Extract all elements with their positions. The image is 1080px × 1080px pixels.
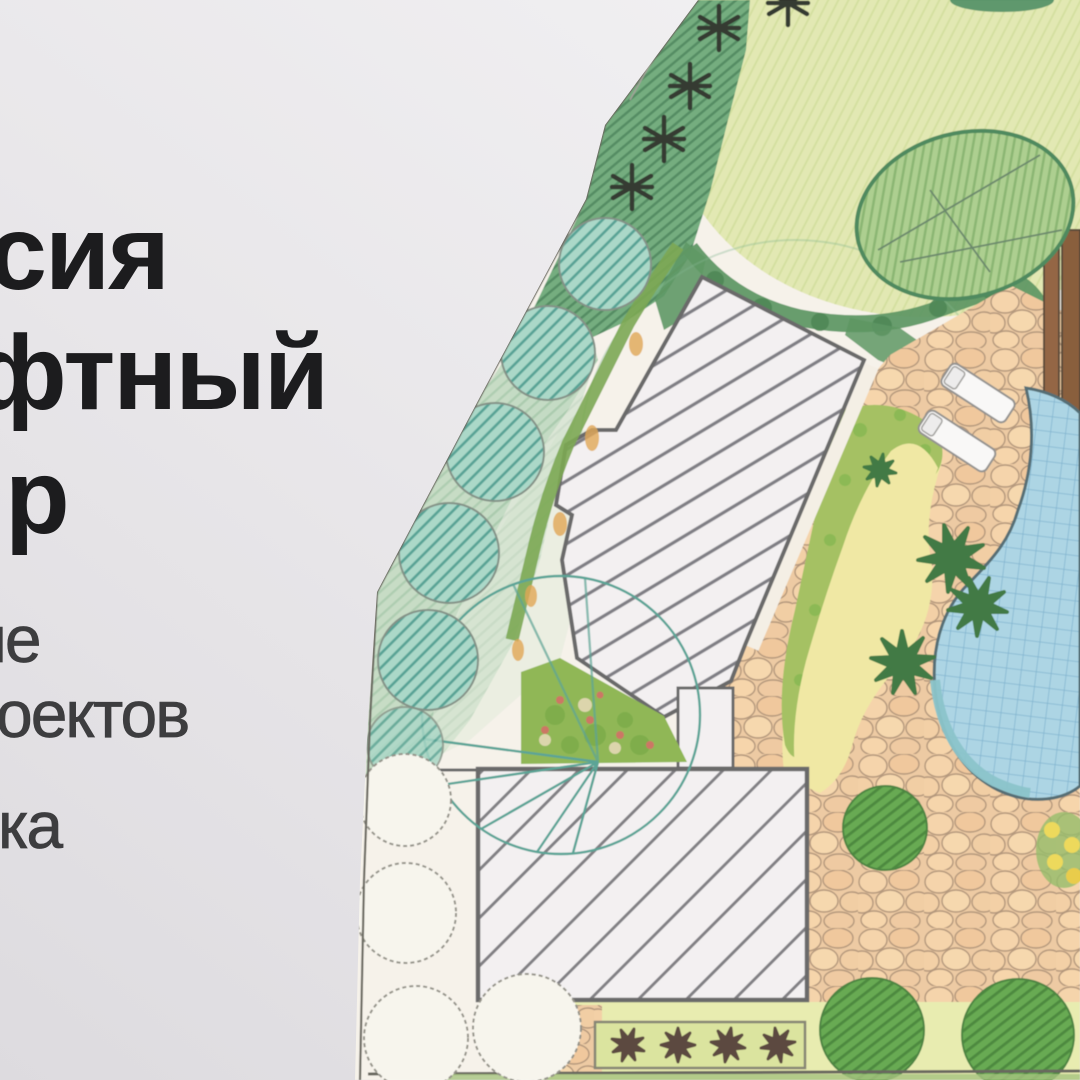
svg-text:оектов: оектов [0, 677, 188, 751]
svg-text:ие: ие [0, 602, 40, 676]
svg-text:ка: ка [0, 788, 63, 862]
svg-text:сия: сия [0, 194, 168, 312]
svg-text:р: р [5, 438, 68, 556]
svg-text:фтный: фтный [0, 314, 327, 432]
